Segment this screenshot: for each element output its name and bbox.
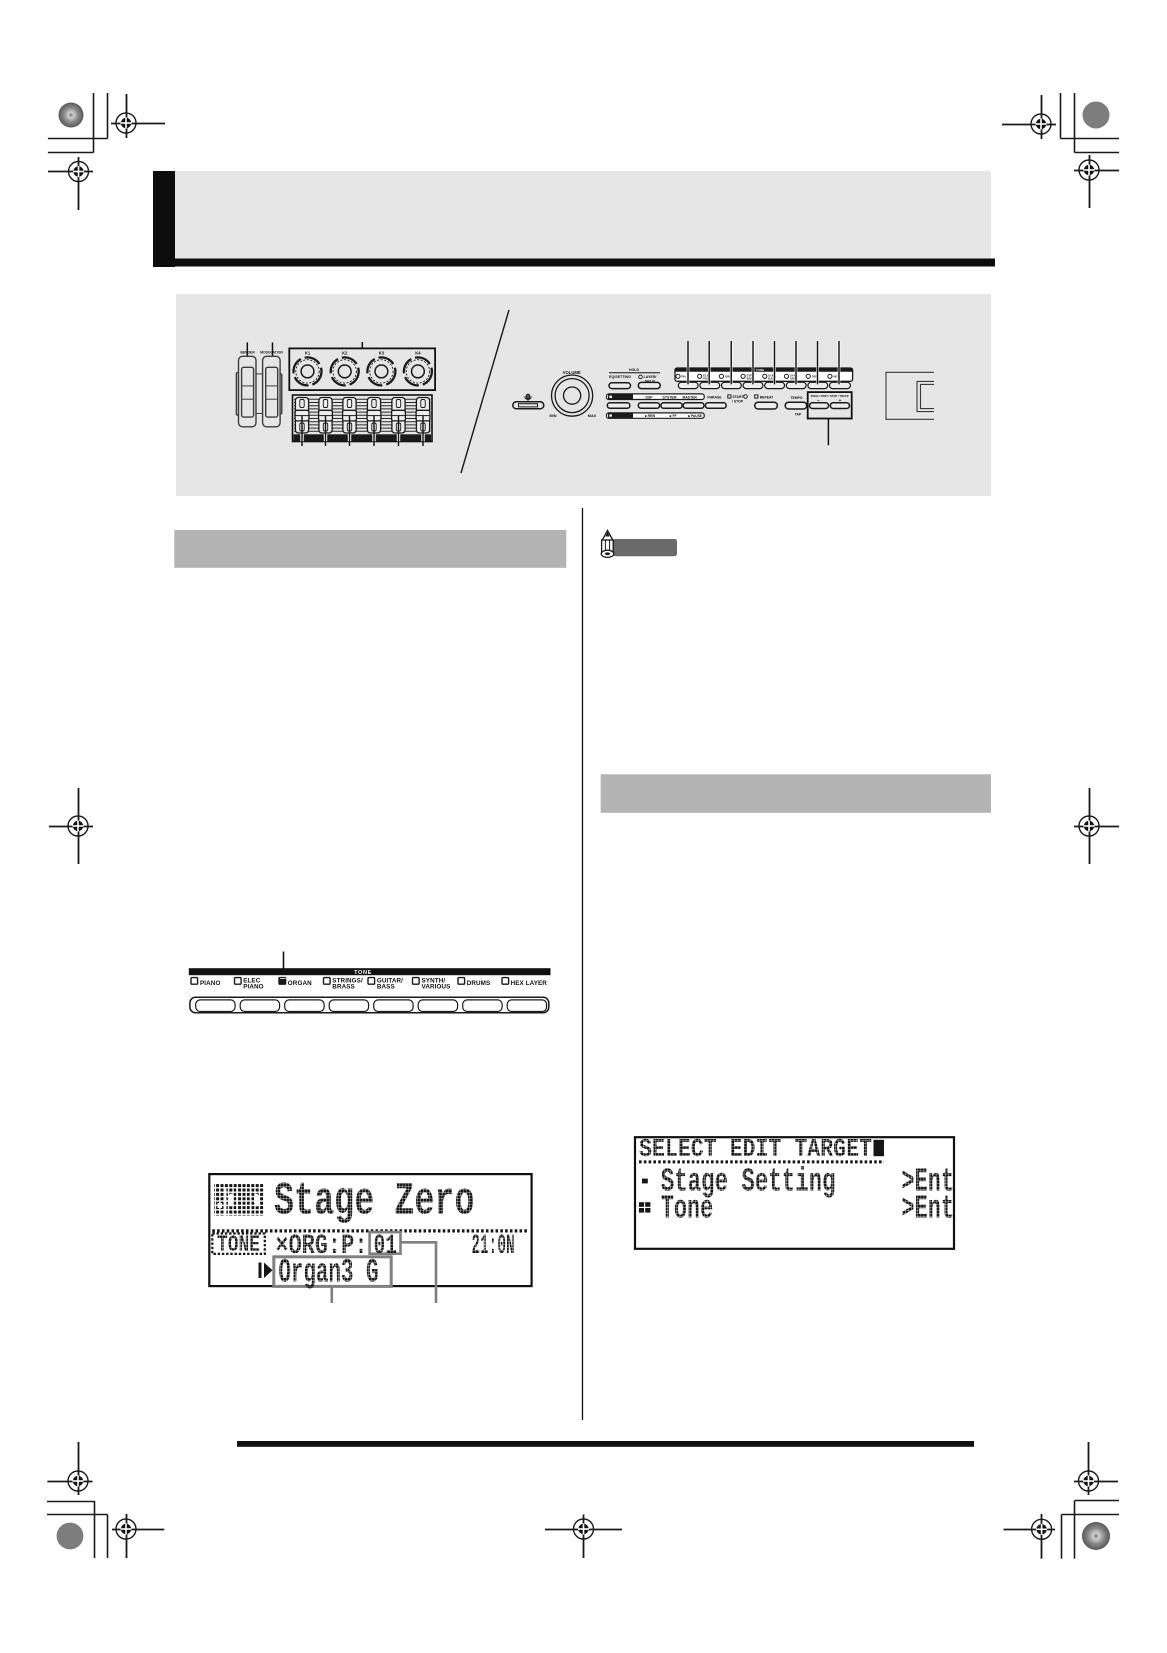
svg-text:K1: K1: [305, 350, 311, 355]
svg-text:SELECT EDIT TARGET: SELECT EDIT TARGET: [639, 1135, 872, 1164]
svg-text:>Ent: >Ent: [901, 1191, 954, 1228]
svg-text:K2: K2: [342, 350, 348, 355]
svg-text:K4: K4: [415, 350, 421, 355]
svg-text:HEX LAYER: HEX LAYER: [511, 980, 548, 987]
svg-text:TONE: TONE: [217, 1232, 260, 1258]
svg-text:Organ3 G: Organ3 G: [279, 1255, 379, 1293]
svg-text:MAX: MAX: [588, 414, 597, 418]
svg-text:21:0N: 21:0N: [471, 1231, 514, 1262]
svg-text:Stage Zero: Stage Zero: [274, 1176, 475, 1228]
svg-text:ORGAN: ORGAN: [288, 980, 312, 987]
svg-text:■ PAUSE: ■ PAUSE: [688, 414, 703, 418]
svg-text:SYSTEM: SYSTEM: [663, 396, 677, 400]
svg-text:TONE: TONE: [354, 970, 372, 976]
svg-text:PIANO: PIANO: [243, 984, 263, 991]
svg-text:/ STOP: / STOP: [732, 399, 744, 403]
svg-text:REPEAT: REPEAT: [760, 395, 774, 399]
svg-text:DRUMS: DRUMS: [467, 980, 491, 987]
svg-text:MASTER: MASTER: [683, 396, 698, 400]
svg-text:BRASS: BRASS: [332, 984, 355, 991]
svg-text:HOLD: HOLD: [629, 368, 640, 372]
svg-text:Tone: Tone: [661, 1191, 713, 1228]
svg-text:PHRASE: PHRASE: [707, 395, 722, 399]
svg-text:BASS: BASS: [377, 984, 395, 991]
svg-text:TEMPO: TEMPO: [790, 396, 802, 400]
svg-text:VOLUME: VOLUME: [563, 370, 581, 375]
svg-text:■ REW: ■ REW: [645, 414, 656, 418]
svg-text:K3: K3: [379, 350, 385, 355]
svg-text:MIN: MIN: [550, 414, 557, 418]
svg-text:PIA: PIA: [703, 376, 708, 380]
svg-text:TONE: TONE: [756, 368, 764, 372]
svg-text:DSP: DSP: [646, 396, 654, 400]
svg-text:PIA: PIA: [682, 374, 687, 378]
svg-text:■ FF: ■ FF: [670, 414, 677, 418]
svg-text:TAP: TAP: [795, 412, 802, 416]
svg-text:EQ/SETTING: EQ/SETTING: [609, 375, 631, 379]
svg-text:PIANO: PIANO: [200, 980, 220, 987]
svg-text:VARIOUS: VARIOUS: [422, 984, 451, 991]
